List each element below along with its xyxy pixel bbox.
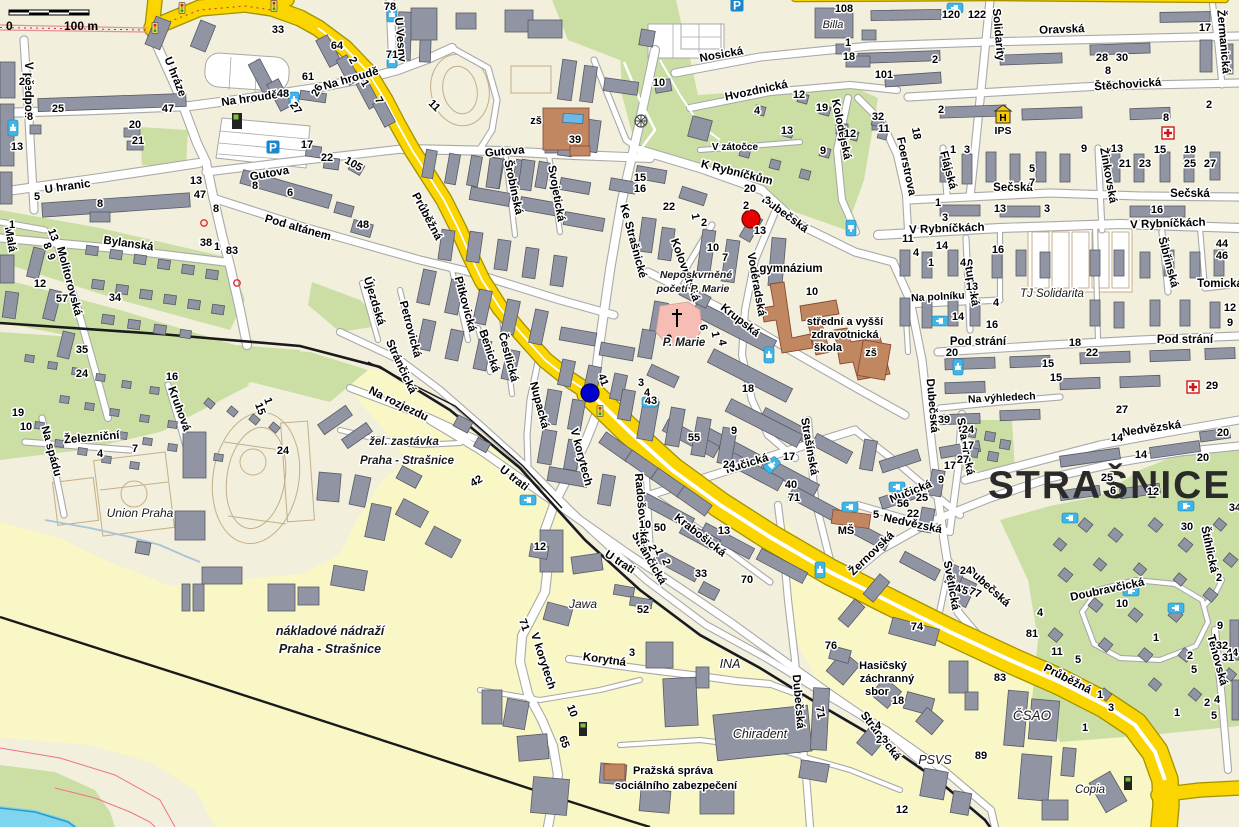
svg-text:13: 13 xyxy=(11,141,23,153)
svg-text:100 m: 100 m xyxy=(64,19,98,33)
svg-text:nákladové nádraží: nákladové nádraží xyxy=(276,624,386,638)
svg-text:4: 4 xyxy=(1214,694,1221,706)
svg-text:12: 12 xyxy=(1147,486,1159,498)
svg-text:64: 64 xyxy=(331,40,344,52)
svg-text:Praha - Strašnice: Praha - Strašnice xyxy=(360,455,455,467)
svg-text:18: 18 xyxy=(1069,337,1081,349)
svg-text:18: 18 xyxy=(843,51,855,63)
svg-text:71: 71 xyxy=(386,49,398,61)
svg-text:1: 1 xyxy=(1082,722,1088,734)
svg-text:9: 9 xyxy=(820,145,826,157)
svg-text:2: 2 xyxy=(743,200,749,212)
svg-text:25: 25 xyxy=(1184,158,1196,170)
svg-text:H: H xyxy=(999,113,1006,124)
svg-text:57: 57 xyxy=(56,293,68,305)
svg-text:16: 16 xyxy=(986,319,998,331)
svg-text:14: 14 xyxy=(936,240,949,252)
svg-text:35: 35 xyxy=(76,344,88,356)
svg-text:11: 11 xyxy=(878,123,890,135)
svg-text:44: 44 xyxy=(1216,238,1229,250)
svg-text:48: 48 xyxy=(357,219,369,231)
svg-text:V zátočce: V zátočce xyxy=(712,142,759,153)
svg-text:2: 2 xyxy=(1206,99,1212,111)
svg-text:32: 32 xyxy=(1216,640,1228,652)
svg-text:2: 2 xyxy=(932,54,938,66)
svg-text:18: 18 xyxy=(909,126,923,140)
svg-text:Praha - Strašnice: Praha - Strašnice xyxy=(279,642,381,656)
svg-text:101: 101 xyxy=(875,69,893,81)
svg-text:4: 4 xyxy=(644,387,651,399)
svg-text:1: 1 xyxy=(935,197,941,209)
svg-text:5: 5 xyxy=(1029,163,1035,175)
svg-text:20: 20 xyxy=(946,347,958,359)
svg-text:13: 13 xyxy=(994,203,1006,215)
svg-text:početí P. Marie: početí P. Marie xyxy=(656,283,730,295)
svg-text:Pražská správa: Pražská správa xyxy=(633,765,714,777)
svg-text:P. Marie: P. Marie xyxy=(663,337,706,349)
svg-text:2: 2 xyxy=(1216,572,1222,584)
svg-text:Tomická: Tomická xyxy=(1197,278,1239,290)
svg-text:1: 1 xyxy=(845,37,851,49)
svg-text:20: 20 xyxy=(129,119,141,131)
svg-text:15: 15 xyxy=(1050,372,1062,384)
svg-text:INA: INA xyxy=(720,657,741,671)
svg-text:sbor: sbor xyxy=(865,686,890,698)
svg-text:38: 38 xyxy=(200,237,212,249)
svg-text:8: 8 xyxy=(97,198,103,210)
svg-text:108: 108 xyxy=(835,3,853,15)
svg-text:6: 6 xyxy=(1110,485,1116,497)
svg-text:9: 9 xyxy=(1217,620,1223,632)
svg-text:16: 16 xyxy=(1151,204,1163,216)
svg-text:4: 4 xyxy=(993,297,1000,309)
svg-text:16: 16 xyxy=(992,244,1004,256)
svg-text:Jawa: Jawa xyxy=(568,597,597,611)
svg-text:15: 15 xyxy=(1154,144,1166,156)
svg-text:4: 4 xyxy=(913,247,920,259)
svg-text:30: 30 xyxy=(1181,521,1193,533)
svg-text:18: 18 xyxy=(892,695,904,707)
svg-text:gymnázium: gymnázium xyxy=(759,263,822,275)
svg-text:Sečská: Sečská xyxy=(993,182,1033,194)
svg-text:39: 39 xyxy=(569,134,581,146)
svg-text:13: 13 xyxy=(754,225,766,237)
svg-text:Sečská: Sečská xyxy=(1170,188,1210,200)
svg-text:5: 5 xyxy=(1075,654,1081,666)
svg-text:11: 11 xyxy=(1051,646,1063,658)
svg-text:10: 10 xyxy=(653,77,665,89)
svg-text:škola: škola xyxy=(814,342,843,354)
svg-text:10: 10 xyxy=(707,242,719,254)
svg-text:13: 13 xyxy=(966,281,978,293)
svg-text:34: 34 xyxy=(1229,502,1239,514)
svg-text:8: 8 xyxy=(1105,65,1111,77)
svg-text:29: 29 xyxy=(1206,380,1218,392)
svg-text:1: 1 xyxy=(214,241,220,253)
svg-text:25: 25 xyxy=(1101,472,1113,484)
svg-text:33: 33 xyxy=(272,24,284,36)
svg-text:4: 4 xyxy=(97,448,104,460)
svg-text:TJ Solidarita: TJ Solidarita xyxy=(1020,288,1084,300)
svg-text:50: 50 xyxy=(654,522,666,534)
svg-text:20: 20 xyxy=(1197,452,1209,464)
svg-text:28: 28 xyxy=(1096,52,1108,64)
svg-text:46: 46 xyxy=(1216,250,1228,262)
svg-text:74: 74 xyxy=(911,621,924,633)
svg-text:ČSAO: ČSAO xyxy=(1013,708,1052,723)
svg-text:střední a vyšší: střední a vyšší xyxy=(807,316,884,328)
svg-text:14: 14 xyxy=(1135,449,1148,461)
svg-text:8: 8 xyxy=(213,203,219,215)
svg-text:4: 4 xyxy=(754,105,761,117)
svg-text:22: 22 xyxy=(321,152,333,164)
svg-text:7: 7 xyxy=(722,252,728,264)
svg-text:Billa: Billa xyxy=(823,19,844,31)
svg-text:4: 4 xyxy=(1037,607,1044,619)
svg-text:13: 13 xyxy=(190,175,202,187)
svg-text:21: 21 xyxy=(1119,158,1131,170)
svg-text:17: 17 xyxy=(783,451,795,463)
svg-text:sociálního zabezpečení: sociálního zabezpečení xyxy=(615,780,738,792)
svg-text:1: 1 xyxy=(1097,689,1103,701)
svg-text:34: 34 xyxy=(109,292,122,304)
svg-text:19: 19 xyxy=(816,102,828,114)
svg-text:22: 22 xyxy=(663,201,675,213)
svg-text:12: 12 xyxy=(534,541,546,553)
svg-text:70: 70 xyxy=(741,574,753,586)
svg-text:24: 24 xyxy=(960,565,973,577)
svg-text:48: 48 xyxy=(277,88,289,100)
svg-text:PSVS: PSVS xyxy=(918,753,952,767)
svg-text:Copia: Copia xyxy=(1075,784,1105,796)
svg-text:3: 3 xyxy=(1044,203,1050,215)
svg-text:3: 3 xyxy=(765,195,771,207)
svg-text:89: 89 xyxy=(975,750,987,762)
svg-text:27: 27 xyxy=(1116,404,1128,416)
svg-text:3: 3 xyxy=(964,144,970,156)
svg-text:zš: zš xyxy=(865,347,877,359)
svg-text:32: 32 xyxy=(872,111,884,123)
svg-text:1: 1 xyxy=(928,257,934,269)
svg-text:MŠ: MŠ xyxy=(838,524,855,537)
svg-text:8: 8 xyxy=(252,180,258,192)
svg-text:Union Praha: Union Praha xyxy=(107,506,174,520)
svg-text:13: 13 xyxy=(781,125,793,137)
svg-text:30: 30 xyxy=(1116,52,1128,64)
svg-text:17: 17 xyxy=(962,440,974,452)
svg-text:8: 8 xyxy=(1163,112,1169,124)
svg-text:71: 71 xyxy=(813,705,827,719)
svg-text:1: 1 xyxy=(9,219,15,231)
svg-text:17: 17 xyxy=(1199,22,1211,34)
svg-text:14: 14 xyxy=(952,311,965,323)
svg-text:19: 19 xyxy=(12,407,24,419)
svg-text:122: 122 xyxy=(968,9,986,21)
svg-text:4: 4 xyxy=(875,720,882,732)
svg-text:6: 6 xyxy=(287,187,293,199)
svg-text:5: 5 xyxy=(34,191,40,203)
svg-text:Pod strání: Pod strání xyxy=(950,336,1007,348)
svg-text:52: 52 xyxy=(637,604,649,616)
svg-text:2: 2 xyxy=(938,104,944,116)
svg-text:23: 23 xyxy=(1139,158,1151,170)
svg-text:81: 81 xyxy=(1026,628,1038,640)
svg-text:10: 10 xyxy=(806,286,818,298)
svg-text:17: 17 xyxy=(944,460,956,472)
svg-text:Chiradent: Chiradent xyxy=(733,727,788,741)
svg-text:10: 10 xyxy=(1116,598,1128,610)
svg-text:61: 61 xyxy=(302,71,314,83)
svg-text:78: 78 xyxy=(384,1,396,13)
svg-text:12: 12 xyxy=(896,804,908,816)
svg-text:7: 7 xyxy=(1029,177,1035,189)
svg-text:25: 25 xyxy=(52,103,64,115)
svg-text:5: 5 xyxy=(1211,710,1217,722)
svg-text:5: 5 xyxy=(1191,664,1197,676)
svg-text:7: 7 xyxy=(132,443,138,455)
svg-text:4: 4 xyxy=(960,257,967,269)
svg-text:2: 2 xyxy=(1187,650,1193,662)
svg-text:31: 31 xyxy=(1222,652,1234,664)
svg-text:zdravotnická: zdravotnická xyxy=(811,329,879,341)
svg-text:0: 0 xyxy=(6,19,13,33)
svg-text:13: 13 xyxy=(718,525,730,537)
svg-text:9: 9 xyxy=(938,474,944,486)
svg-text:Oravská: Oravská xyxy=(1039,23,1085,37)
svg-text:83: 83 xyxy=(226,245,238,257)
svg-text:zš: zš xyxy=(530,115,542,127)
svg-text:12: 12 xyxy=(1224,302,1236,314)
svg-text:39: 39 xyxy=(938,414,950,426)
svg-text:9: 9 xyxy=(731,425,737,437)
svg-text:47: 47 xyxy=(194,189,206,201)
svg-text:24: 24 xyxy=(76,368,89,380)
svg-text:1: 1 xyxy=(1153,632,1159,644)
svg-text:120: 120 xyxy=(942,9,960,21)
svg-text:24: 24 xyxy=(962,424,975,436)
svg-text:3: 3 xyxy=(1108,702,1114,714)
svg-text:9: 9 xyxy=(1227,317,1233,329)
svg-text:16: 16 xyxy=(634,183,646,195)
svg-text:Hasičský: Hasičský xyxy=(859,660,908,672)
svg-text:8: 8 xyxy=(27,111,33,123)
svg-text:3: 3 xyxy=(638,377,644,389)
svg-text:20: 20 xyxy=(744,183,756,195)
svg-text:P: P xyxy=(269,141,277,155)
svg-text:9: 9 xyxy=(1081,143,1087,155)
svg-text:3: 3 xyxy=(629,647,635,659)
svg-text:18: 18 xyxy=(742,383,754,395)
svg-text:11: 11 xyxy=(902,233,914,245)
svg-text:záchranný: záchranný xyxy=(860,673,915,685)
svg-text:P: P xyxy=(733,0,741,13)
svg-text:1: 1 xyxy=(950,144,956,156)
svg-text:27: 27 xyxy=(957,454,969,466)
svg-text:1: 1 xyxy=(1174,707,1180,719)
svg-text:24: 24 xyxy=(723,459,736,471)
svg-text:14: 14 xyxy=(1111,432,1124,444)
svg-text:12: 12 xyxy=(34,278,46,290)
svg-text:žel. zastávka: žel. zastávka xyxy=(368,436,439,448)
svg-text:4: 4 xyxy=(955,583,962,595)
svg-text:83: 83 xyxy=(994,672,1006,684)
svg-text:2: 2 xyxy=(1204,697,1210,709)
svg-text:13: 13 xyxy=(1111,143,1123,155)
svg-text:22: 22 xyxy=(907,508,919,520)
svg-text:19: 19 xyxy=(1184,144,1196,156)
svg-text:22: 22 xyxy=(1086,347,1098,359)
svg-text:23: 23 xyxy=(876,734,888,746)
svg-text:IPS: IPS xyxy=(995,125,1012,137)
svg-text:2: 2 xyxy=(701,217,707,229)
svg-text:26: 26 xyxy=(19,76,31,88)
svg-text:3: 3 xyxy=(942,212,948,224)
svg-text:55: 55 xyxy=(688,432,700,444)
svg-text:5: 5 xyxy=(873,509,879,521)
svg-text:76: 76 xyxy=(825,640,837,652)
svg-text:12: 12 xyxy=(844,128,856,140)
svg-text:17: 17 xyxy=(301,139,313,151)
svg-text:12: 12 xyxy=(793,89,805,101)
svg-text:Pod strání: Pod strání xyxy=(1157,334,1214,346)
svg-text:47: 47 xyxy=(162,103,174,115)
svg-text:25: 25 xyxy=(916,492,928,504)
svg-text:71: 71 xyxy=(788,492,800,504)
svg-text:20: 20 xyxy=(1217,427,1229,439)
svg-text:Neposkvrněné: Neposkvrněné xyxy=(660,269,733,281)
svg-text:10: 10 xyxy=(20,421,32,433)
svg-text:27: 27 xyxy=(1204,158,1216,170)
svg-text:16: 16 xyxy=(166,371,178,383)
svg-text:33: 33 xyxy=(695,568,707,580)
svg-text:24: 24 xyxy=(277,445,290,457)
svg-text:40: 40 xyxy=(785,479,797,491)
svg-text:10: 10 xyxy=(639,519,651,531)
svg-text:15: 15 xyxy=(1042,358,1054,370)
svg-text:21: 21 xyxy=(132,135,144,147)
